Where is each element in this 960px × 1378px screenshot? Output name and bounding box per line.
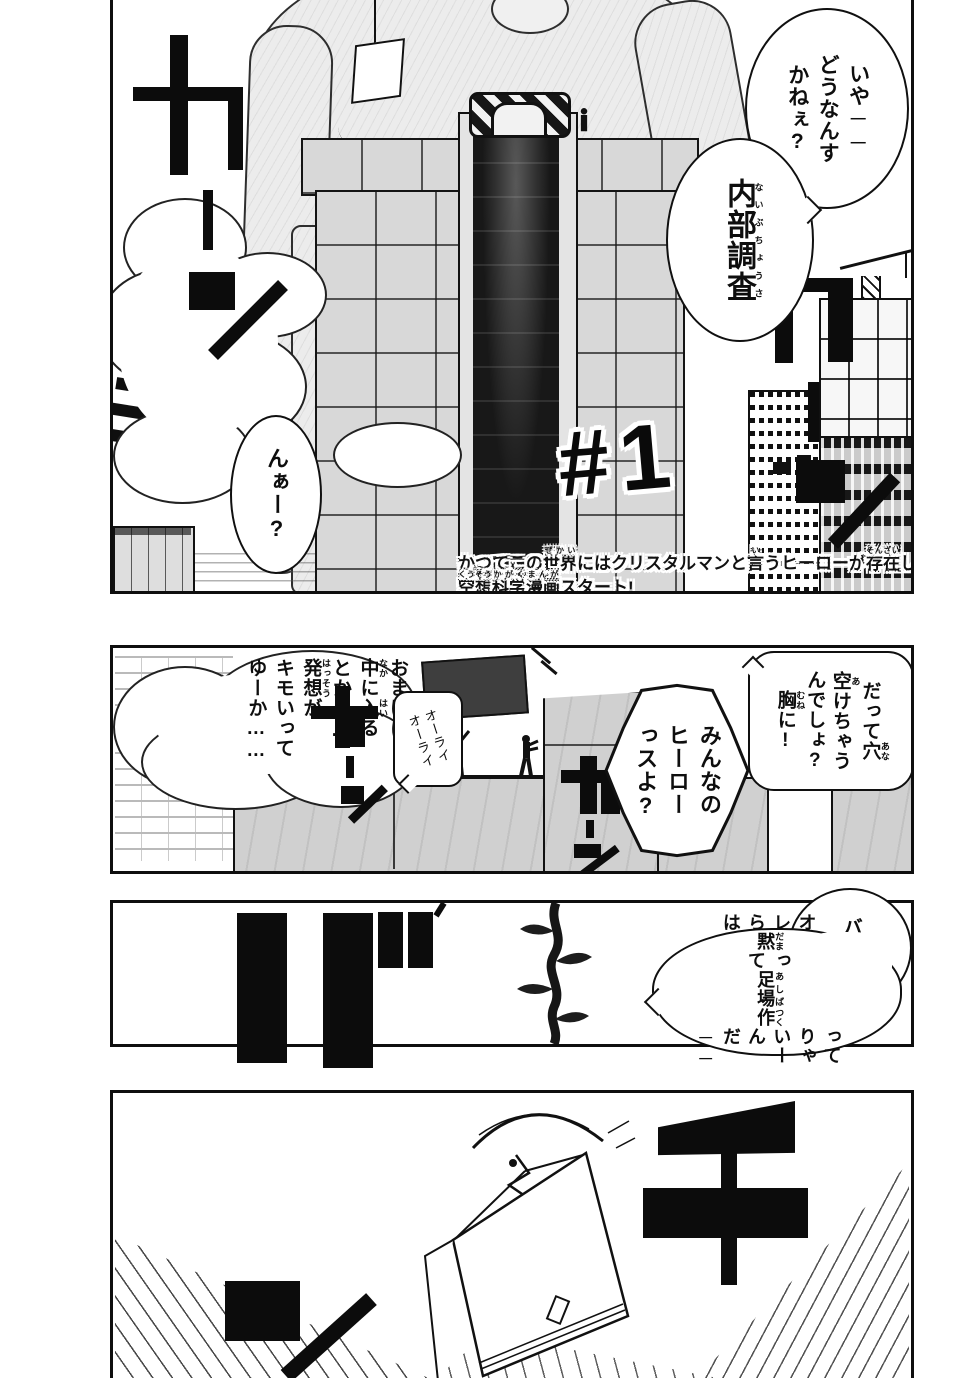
cap-handle [491, 102, 547, 135]
sfx-stroke [237, 913, 287, 1063]
sfx-stroke [341, 786, 364, 804]
speech-bubble-minna: みんなのヒーローっスよ? [601, 672, 753, 870]
speech-bubble-naibu: 内部調査ないぶちょうさ [666, 138, 814, 342]
smoke-puff [333, 422, 462, 488]
speech-bubble-datte: だって穴あな空あけちゃうんでしょ?胸むねに! [748, 651, 914, 791]
hatch-cable [374, 0, 376, 46]
sfx-dakuten [378, 912, 403, 968]
vine-plant [508, 903, 598, 1044]
sfx-stroke [580, 756, 597, 814]
speech-bubble-naa: んぁー? [230, 415, 322, 574]
corner-building [113, 526, 195, 594]
sfx-stroke [721, 1153, 737, 1285]
sfx-stroke [323, 913, 373, 1068]
crane-cable [905, 252, 907, 278]
sfx-stroke [586, 820, 594, 838]
corner-building-roof [113, 526, 191, 535]
speech-text: オレらは黙だまって足場あしば作つくってりゃいーんだ── [668, 936, 868, 1046]
sfx-stroke [335, 686, 350, 748]
manga-page: いや──どうなんすかねぇ? 内部調査ないぶちょうさ んぁー? #1 かつてこの世… [0, 0, 960, 1378]
hatch-door [351, 38, 405, 104]
speech-bubble-orai: オーライオーライ [393, 691, 463, 787]
sfx-dakuten [408, 912, 433, 968]
sfx-stroke [228, 95, 243, 170]
hanging-door-panel [383, 1093, 663, 1378]
speech-text: みんなのヒーローっスよ? [601, 672, 753, 870]
sfx-stroke [189, 272, 235, 310]
panel-2: おまけに中なかに入はいるとか……発想はっそうがキモいってゆーか…… オーライオー… [110, 645, 914, 874]
sfx-stroke [808, 382, 819, 442]
sfx-stroke [133, 87, 243, 101]
sfx-stroke [574, 844, 601, 858]
worker-pushing [517, 733, 539, 778]
sfx-stroke [350, 719, 365, 747]
chapter-title: #1 [554, 403, 685, 518]
sfx-stroke [796, 460, 845, 503]
swing-arc [473, 1115, 603, 1148]
sfx-stroke [225, 1281, 300, 1341]
sfx-stroke [170, 35, 188, 175]
panel-4 [110, 1090, 914, 1378]
sfx-stroke [658, 1101, 795, 1158]
narration-caption-line2: 空想くうそう科学かがく漫画まんがスタート! [458, 570, 634, 594]
speech-text: だって穴あな空あけちゃうんでしょ?胸むねに! [772, 670, 890, 772]
crane-jib [840, 249, 913, 270]
sfx-stroke [828, 285, 853, 362]
speech-text: 内部調査ないぶちょうさ [717, 178, 764, 302]
dark-shaft [473, 128, 559, 592]
sfx-stroke [346, 756, 354, 778]
speech-text: んぁー? [260, 447, 292, 542]
panel-1: いや──どうなんすかねぇ? 内部調査ないぶちょうさ んぁー? #1 かつてこの世… [110, 0, 914, 594]
speech-text: いや──どうなんすかねぇ? [781, 54, 872, 164]
speech-text: オーライオーライ [403, 707, 452, 771]
rooftop-unit [773, 462, 791, 474]
sfx-stroke [203, 190, 213, 250]
tiny-person-icon [579, 106, 589, 134]
